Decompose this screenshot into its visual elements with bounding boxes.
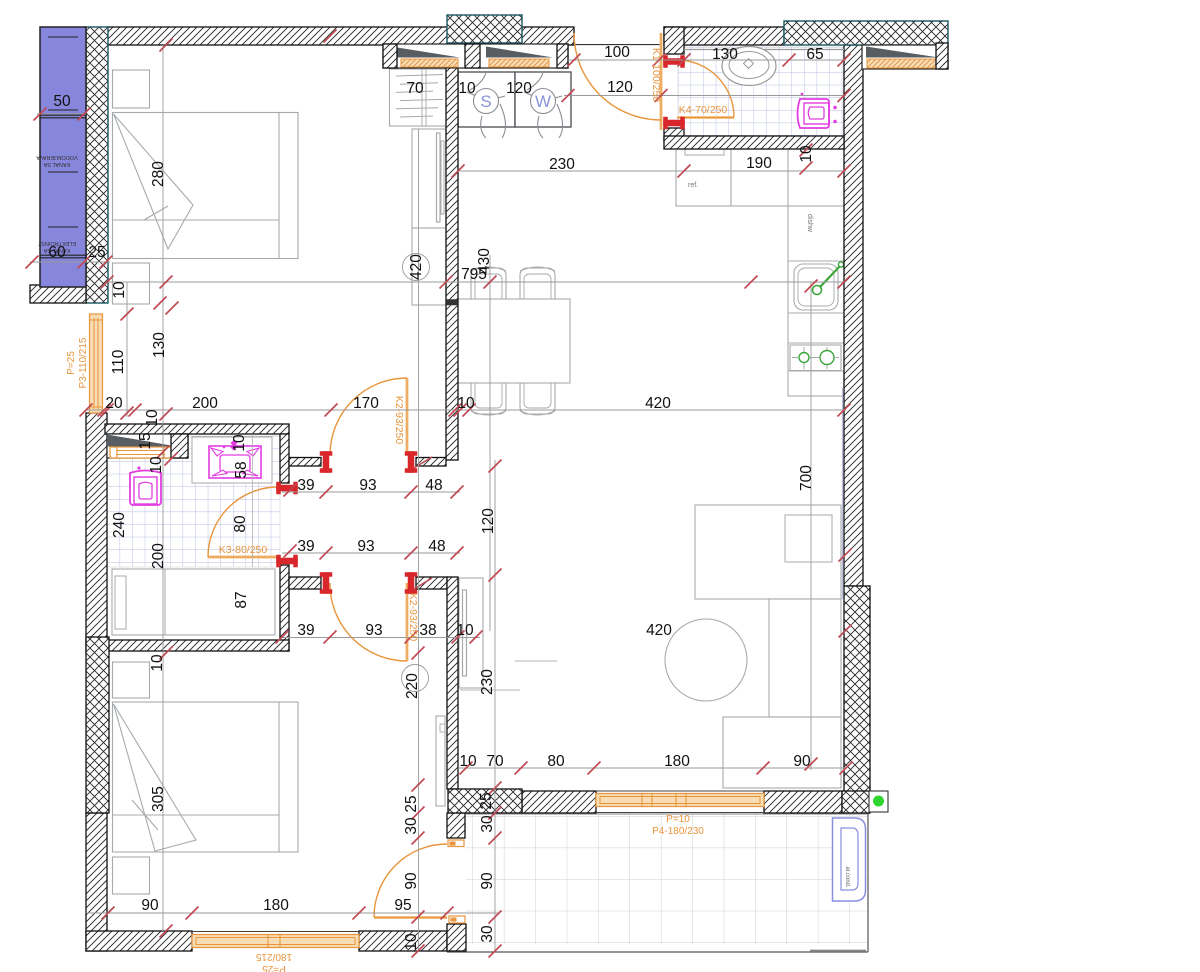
svg-text:170: 170 (353, 395, 379, 412)
svg-text:VODOMJERAVA: VODOMJERAVA (36, 154, 78, 160)
svg-text:15: 15 (137, 432, 154, 449)
svg-text:48: 48 (428, 538, 445, 555)
svg-text:240: 240 (111, 512, 128, 538)
svg-text:90: 90 (479, 872, 496, 890)
svg-text:10: 10 (231, 434, 248, 452)
svg-text:P4-180/230: P4-180/230 (652, 826, 704, 837)
svg-text:220: 220 (404, 673, 421, 699)
svg-text:80: 80 (232, 515, 249, 533)
svg-text:87: 87 (233, 591, 250, 608)
svg-text:K2-93/250: K2-93/250 (407, 593, 419, 642)
svg-text:420: 420 (645, 395, 671, 412)
svg-text:K3-80/250: K3-80/250 (219, 544, 268, 556)
svg-text:420: 420 (408, 254, 425, 280)
svg-text:S: S (480, 92, 491, 111)
svg-text:230: 230 (549, 156, 575, 173)
svg-text:10: 10 (144, 409, 161, 427)
svg-text:10: 10 (149, 654, 166, 672)
svg-text:ar.cond.: ar.cond. (844, 866, 850, 888)
svg-text:20: 20 (105, 395, 123, 412)
svg-text:K4-70/250: K4-70/250 (679, 104, 728, 116)
svg-text:30: 30 (479, 815, 496, 833)
svg-text:180/215: 180/215 (255, 951, 292, 962)
svg-text:10: 10 (148, 456, 165, 474)
svg-text:130: 130 (151, 332, 168, 358)
svg-text:P3-110/215: P3-110/215 (78, 337, 89, 388)
svg-text:430: 430 (476, 248, 493, 274)
svg-text:25: 25 (88, 244, 105, 261)
svg-text:50: 50 (53, 93, 71, 110)
svg-text:110: 110 (110, 349, 127, 374)
svg-text:180: 180 (664, 753, 690, 770)
svg-text:25: 25 (478, 792, 495, 809)
svg-text:60: 60 (48, 244, 66, 261)
svg-text:10: 10 (457, 395, 475, 412)
svg-text:58: 58 (233, 461, 250, 478)
svg-text:305: 305 (150, 786, 167, 812)
svg-text:38: 38 (419, 622, 436, 639)
svg-text:90: 90 (141, 897, 159, 914)
svg-text:P=25: P=25 (262, 963, 286, 972)
svg-text:30: 30 (403, 817, 420, 835)
svg-text:230: 230 (479, 669, 496, 695)
svg-text:K1-100/250: K1-100/250 (650, 48, 662, 102)
svg-text:80: 80 (547, 753, 565, 770)
svg-text:10: 10 (798, 145, 815, 163)
svg-text:190: 190 (746, 155, 772, 172)
svg-text:280: 280 (150, 161, 167, 187)
svg-text:65: 65 (806, 46, 823, 63)
svg-text:93: 93 (365, 622, 382, 639)
svg-text:120: 120 (480, 508, 497, 534)
svg-text:10: 10 (456, 622, 474, 639)
svg-text:P=25: P=25 (66, 351, 77, 375)
svg-text:30: 30 (479, 925, 496, 943)
svg-text:90: 90 (793, 753, 811, 770)
svg-text:10: 10 (459, 753, 477, 770)
svg-text:180: 180 (263, 897, 289, 914)
svg-text:dishw: dishw (806, 214, 813, 233)
svg-text:10: 10 (403, 933, 420, 951)
svg-text:93: 93 (359, 477, 376, 494)
svg-text:200: 200 (192, 395, 218, 412)
svg-text:120: 120 (607, 79, 633, 96)
svg-text:95: 95 (394, 897, 411, 914)
svg-text:25: 25 (403, 795, 420, 812)
svg-text:K2-93/250: K2-93/250 (393, 396, 405, 445)
svg-text:90: 90 (403, 872, 420, 890)
svg-text:93: 93 (357, 538, 374, 555)
svg-text:700: 700 (798, 465, 815, 491)
svg-text:48: 48 (425, 477, 442, 494)
svg-text:200: 200 (150, 543, 167, 569)
svg-text:39: 39 (297, 477, 314, 494)
svg-text:420: 420 (646, 622, 672, 639)
svg-text:39: 39 (297, 538, 314, 555)
svg-text:10: 10 (458, 80, 476, 97)
svg-text:39: 39 (297, 622, 314, 639)
svg-text:130: 130 (712, 46, 738, 63)
svg-text:P=10: P=10 (666, 814, 690, 825)
svg-text:120: 120 (506, 80, 532, 97)
svg-text:70: 70 (486, 753, 504, 770)
svg-text:KANAL SA: KANAL SA (43, 161, 70, 167)
svg-text:10: 10 (111, 281, 128, 299)
svg-text:70: 70 (406, 80, 424, 97)
svg-text:ref.: ref. (688, 182, 698, 189)
svg-text:W: W (535, 92, 551, 111)
svg-text:100: 100 (604, 44, 630, 61)
